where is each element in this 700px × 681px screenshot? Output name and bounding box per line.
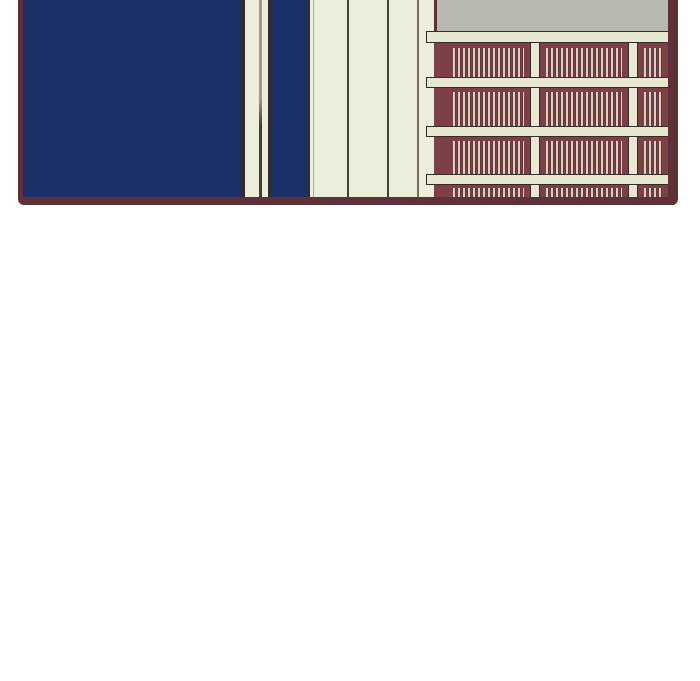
page-background bbox=[0, 0, 700, 681]
book-row-cell bbox=[447, 137, 530, 174]
wall-panel-seam bbox=[347, 0, 349, 197]
book-row-cell bbox=[638, 137, 668, 174]
wall-panel-seam bbox=[313, 0, 314, 197]
books bbox=[644, 141, 662, 174]
book-row-cell bbox=[638, 43, 668, 77]
bookshelf bbox=[434, 0, 668, 197]
navy-wall bbox=[23, 0, 245, 197]
book-row-cell bbox=[540, 88, 628, 126]
books bbox=[644, 48, 662, 77]
book-row-cell bbox=[540, 43, 628, 77]
wall-panel-seam bbox=[387, 0, 389, 197]
gray-wall bbox=[437, 0, 668, 31]
books bbox=[546, 188, 622, 197]
book-row-cell bbox=[447, 185, 530, 197]
shelf-board bbox=[426, 77, 668, 88]
books bbox=[453, 141, 524, 174]
books bbox=[453, 92, 524, 126]
navy-column bbox=[268, 0, 310, 197]
books bbox=[644, 188, 662, 197]
books bbox=[644, 92, 662, 126]
shelf-post bbox=[628, 31, 638, 197]
shelf-board bbox=[426, 126, 668, 137]
book-row-cell bbox=[447, 43, 530, 77]
blank-page-area bbox=[0, 205, 700, 681]
wall-panel-seam bbox=[417, 0, 419, 197]
books bbox=[453, 48, 524, 77]
books bbox=[546, 92, 622, 126]
books bbox=[546, 48, 622, 77]
books bbox=[453, 188, 524, 197]
book-row-cell bbox=[540, 185, 628, 197]
book-row-cell bbox=[540, 137, 628, 174]
book-row-cell bbox=[638, 88, 668, 126]
shelf-post bbox=[530, 31, 540, 197]
wall-corner-strip-left bbox=[245, 0, 259, 197]
shelf-board bbox=[426, 31, 668, 43]
paneled-wall bbox=[310, 0, 434, 197]
shelf-area bbox=[434, 31, 668, 197]
shelf-board bbox=[426, 174, 668, 185]
comic-panel bbox=[18, 0, 678, 205]
book-row-cell bbox=[447, 88, 530, 126]
books bbox=[546, 141, 622, 174]
book-row-cell bbox=[638, 185, 668, 197]
